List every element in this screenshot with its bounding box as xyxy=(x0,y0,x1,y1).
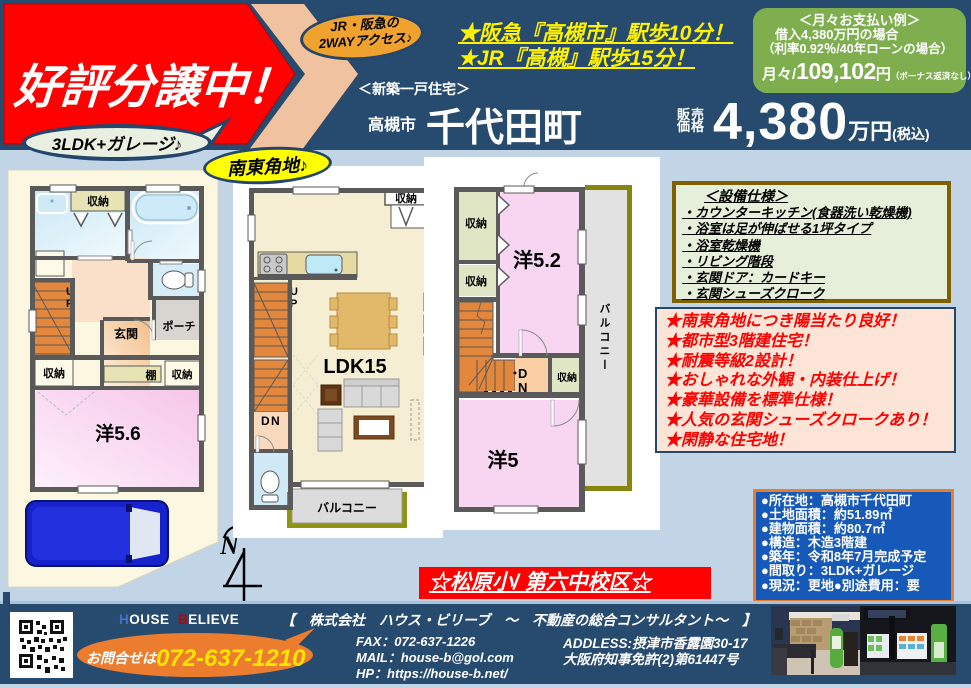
svg-text:収納: 収納 xyxy=(465,216,487,230)
svg-text:ポーチ: ポーチ xyxy=(163,319,196,333)
svg-text:収納: 収納 xyxy=(557,371,577,384)
svg-text:玄関: 玄関 xyxy=(114,326,138,341)
svg-text:収納: 収納 xyxy=(172,368,193,381)
svg-text:洋5: 洋5 xyxy=(487,448,518,472)
svg-text:収納: 収納 xyxy=(87,194,109,208)
svg-text:洋5.2: 洋5.2 xyxy=(513,248,561,272)
svg-text:収納: 収納 xyxy=(465,274,487,288)
svg-text:収納: 収納 xyxy=(395,191,417,205)
svg-text:棚: 棚 xyxy=(146,368,157,382)
svg-text:D: D xyxy=(518,366,527,381)
svg-text:収納: 収納 xyxy=(43,366,65,380)
svg-text:N: N xyxy=(271,414,280,428)
svg-text:LDK15: LDK15 xyxy=(323,356,386,378)
svg-text:バルコニー: バルコニー xyxy=(598,303,611,373)
svg-text:バルコニー: バルコニー xyxy=(317,501,377,515)
svg-text:D: D xyxy=(261,414,270,428)
svg-text:洋5.6: 洋5.6 xyxy=(95,422,140,445)
